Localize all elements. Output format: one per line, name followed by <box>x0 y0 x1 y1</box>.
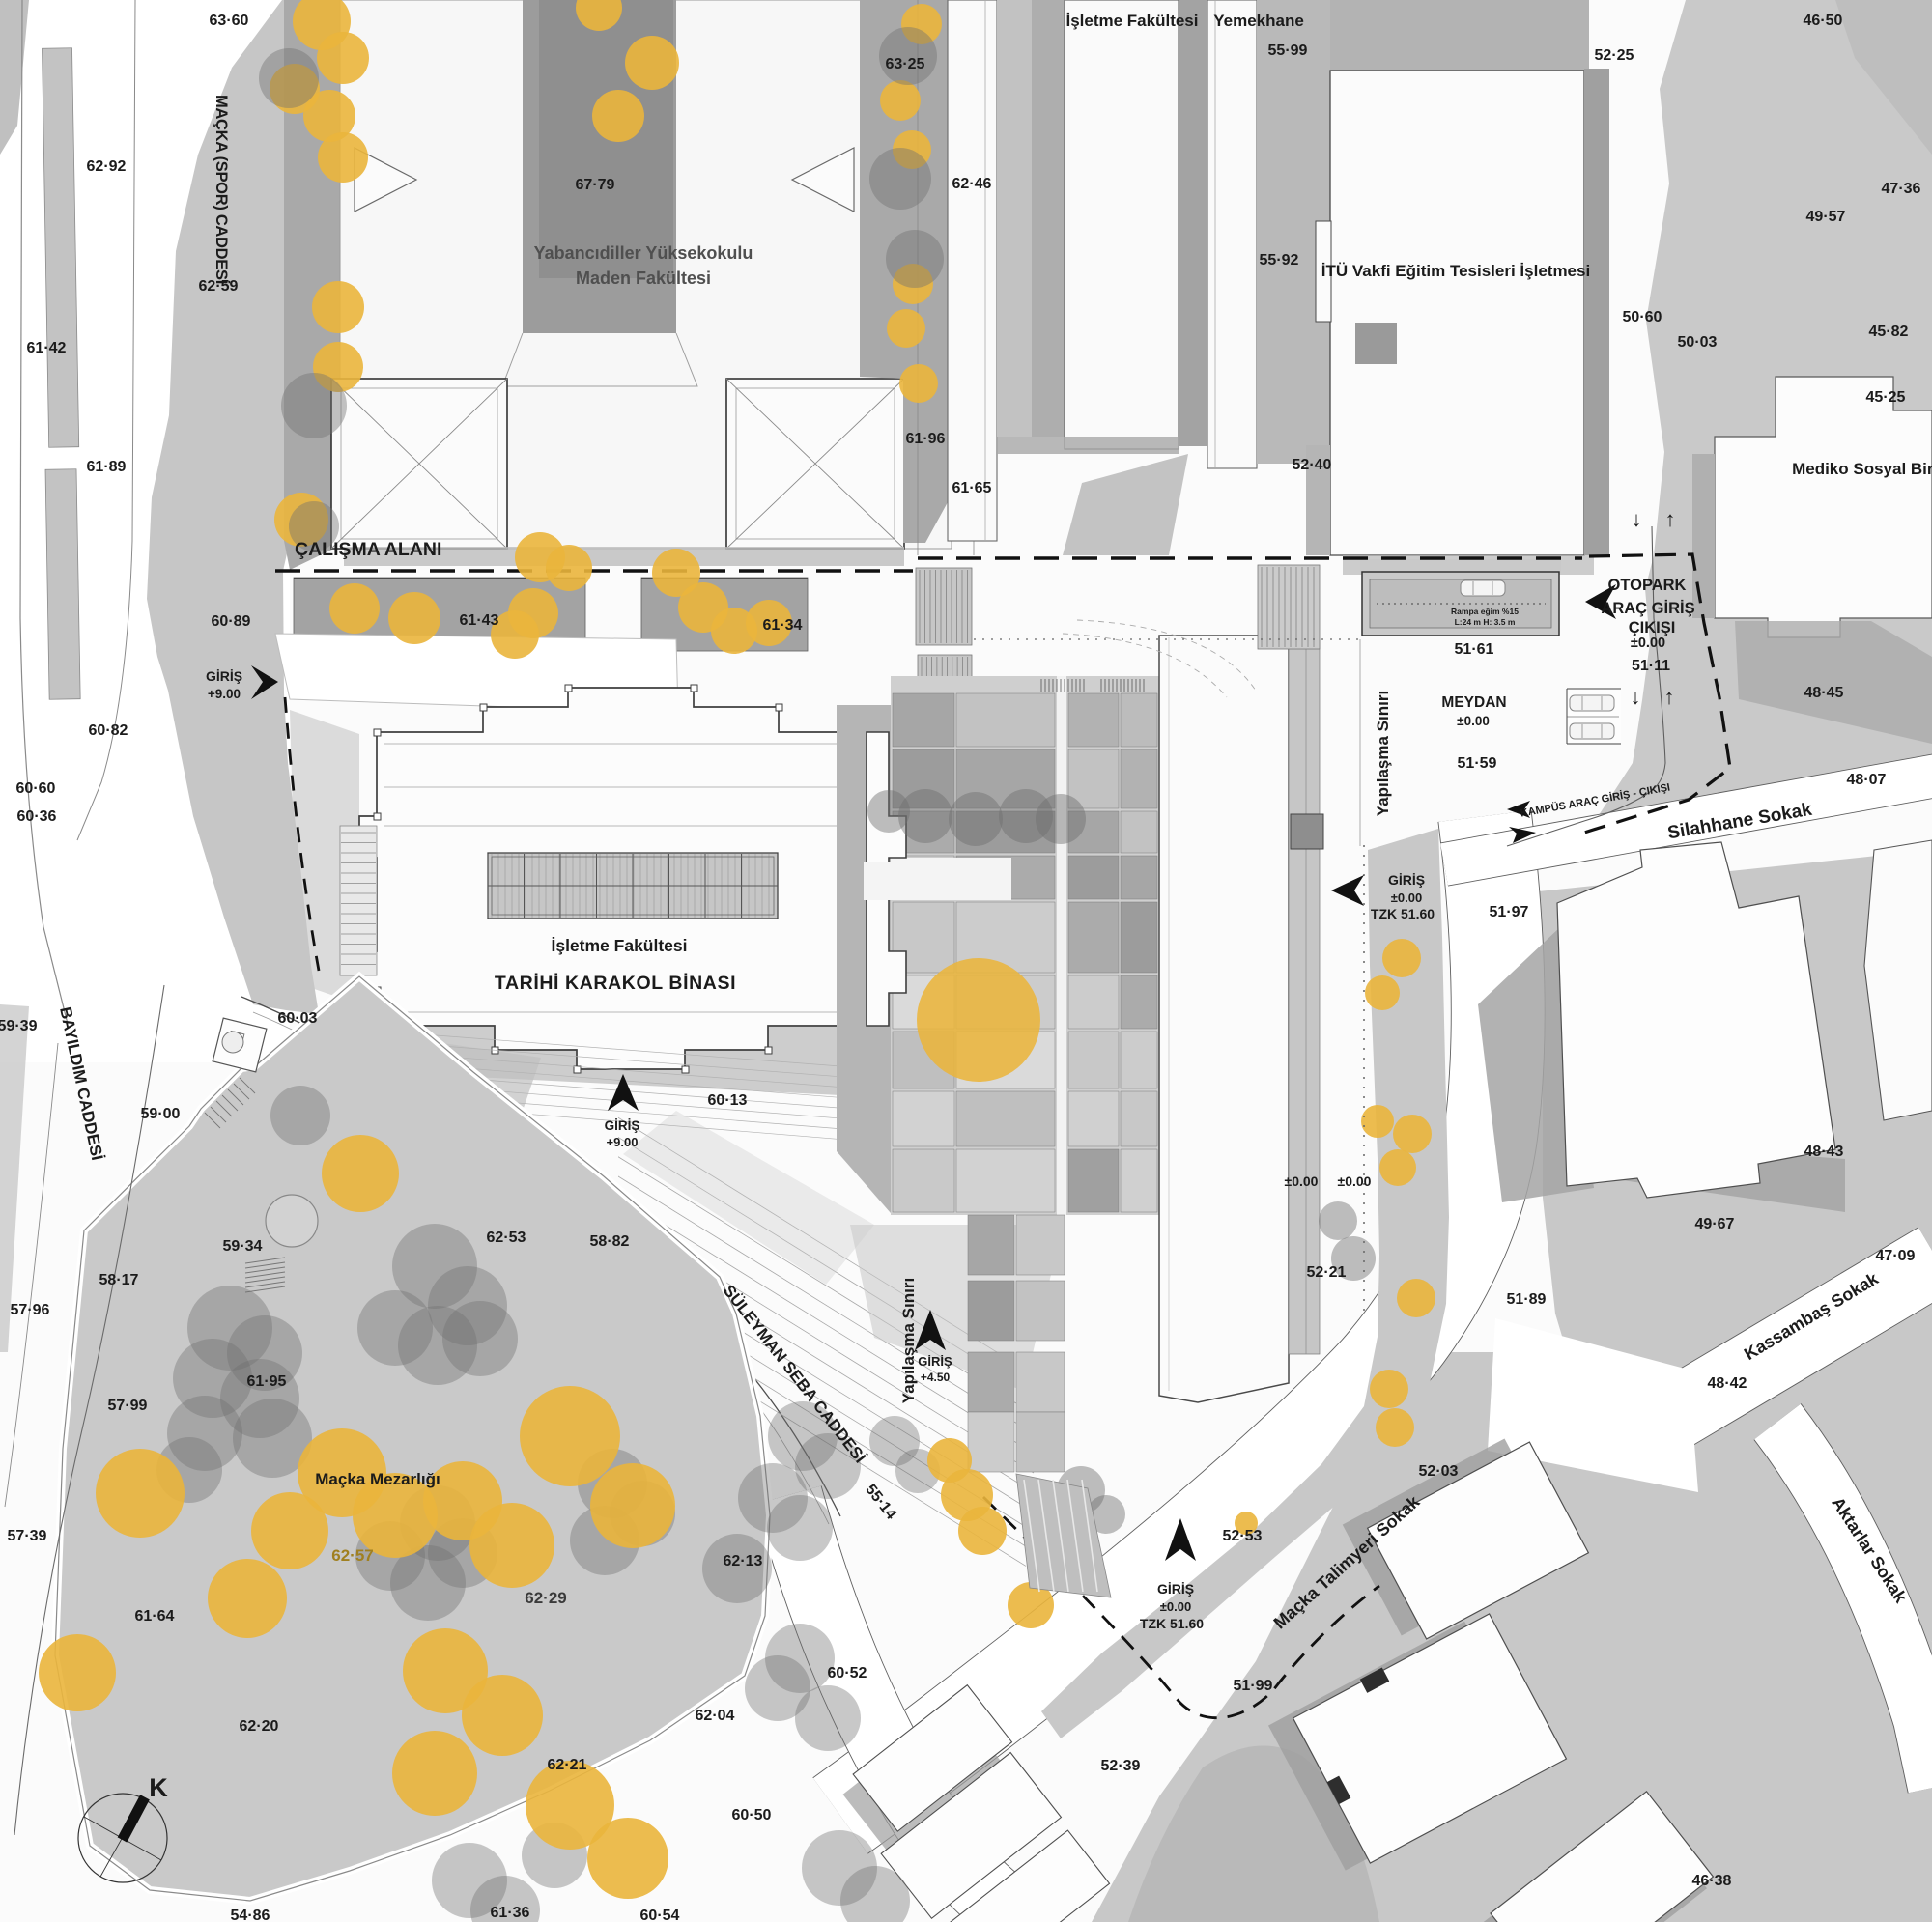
svg-text:↑: ↑ <box>1664 685 1675 709</box>
svg-text:61·64: 61·64 <box>135 1608 175 1625</box>
svg-text:60·60: 60·60 <box>16 780 56 797</box>
svg-text:48·07: 48·07 <box>1847 772 1887 788</box>
svg-text:57·39: 57·39 <box>8 1528 47 1544</box>
svg-text:±0.00: ±0.00 <box>1631 636 1665 651</box>
svg-text:51·97: 51·97 <box>1490 904 1529 920</box>
svg-text:İşletme Fakültesi: İşletme Fakültesi <box>1065 12 1198 30</box>
svg-text:Maden Fakültesi: Maden Fakültesi <box>576 269 711 288</box>
svg-text:İTÜ Vakfi Eğitim Tesisleri İşl: İTÜ Vakfi Eğitim Tesisleri İşletmesi <box>1321 262 1590 280</box>
svg-text:59·00: 59·00 <box>141 1106 181 1122</box>
svg-text:±0.00: ±0.00 <box>1391 890 1422 905</box>
svg-text:62·04: 62·04 <box>696 1708 735 1724</box>
svg-text:45·82: 45·82 <box>1869 324 1909 340</box>
svg-text:62·21: 62·21 <box>548 1757 587 1773</box>
svg-text:62·57: 62·57 <box>331 1546 373 1565</box>
svg-text:50·60: 50·60 <box>1623 309 1662 325</box>
svg-text:TZK 51.60: TZK 51.60 <box>1371 906 1435 921</box>
svg-text:51·89: 51·89 <box>1507 1291 1547 1308</box>
svg-text:+9.00: +9.00 <box>607 1135 639 1149</box>
svg-text:61·36: 61·36 <box>491 1905 530 1921</box>
svg-text:55·99: 55·99 <box>1268 42 1308 59</box>
svg-text:ÇALIŞMA ALANI: ÇALIŞMA ALANI <box>295 539 441 560</box>
svg-text:±0.00: ±0.00 <box>1457 714 1490 728</box>
svg-text:ARAÇ GİRİŞ: ARAÇ GİRİŞ <box>1601 600 1694 617</box>
svg-text:50·03: 50·03 <box>1678 334 1718 351</box>
svg-text:Maçka Mezarlığı: Maçka Mezarlığı <box>315 1470 440 1488</box>
svg-text:46·50: 46·50 <box>1804 13 1843 29</box>
svg-text:Yabancıdiller Yüksekokulu: Yabancıdiller Yüksekokulu <box>534 243 753 263</box>
svg-text:Yapılaşma Sınırı: Yapılaşma Sınırı <box>1374 691 1392 816</box>
svg-text:60·82: 60·82 <box>89 722 128 739</box>
svg-text:52·39: 52·39 <box>1101 1758 1141 1774</box>
svg-text:51·11: 51·11 <box>1632 658 1670 674</box>
svg-text:61·42: 61·42 <box>27 340 67 356</box>
svg-text:L:24 m H: 3.5 m: L:24 m H: 3.5 m <box>1455 617 1516 627</box>
svg-text:MEYDAN: MEYDAN <box>1441 694 1506 711</box>
svg-text:GİRİŞ: GİRİŞ <box>605 1118 640 1133</box>
svg-text:±0.00: ±0.00 <box>1160 1599 1191 1614</box>
svg-text:↓: ↓ <box>1632 507 1642 531</box>
svg-text:48·43: 48·43 <box>1804 1144 1844 1160</box>
svg-text:+4.50: +4.50 <box>921 1371 951 1384</box>
svg-text:62·92: 62·92 <box>87 158 127 175</box>
svg-text:48·42: 48·42 <box>1708 1375 1747 1392</box>
svg-text:55·92: 55·92 <box>1260 252 1299 269</box>
svg-text:52·21: 52·21 <box>1307 1264 1347 1281</box>
svg-text:51·59: 51·59 <box>1458 755 1497 772</box>
svg-text:45·25: 45·25 <box>1866 389 1906 406</box>
svg-text:62·29: 62·29 <box>525 1589 566 1607</box>
svg-text:60·52: 60·52 <box>828 1665 867 1682</box>
svg-text:İşletme Fakültesi: İşletme Fakültesi <box>551 936 687 955</box>
svg-text:52·03: 52·03 <box>1419 1463 1459 1480</box>
svg-text:TZK 51.60: TZK 51.60 <box>1140 1616 1204 1631</box>
svg-text:TARİHİ KARAKOL BİNASI: TARİHİ KARAKOL BİNASI <box>495 972 736 994</box>
svg-text:46·38: 46·38 <box>1692 1873 1732 1889</box>
svg-text:60·54: 60·54 <box>640 1908 680 1922</box>
svg-text:51·61: 51·61 <box>1455 641 1494 658</box>
svg-text:MAÇKA (SPOR) CADDESİ: MAÇKA (SPOR) CADDESİ <box>213 95 230 284</box>
svg-text:61·96: 61·96 <box>906 431 946 447</box>
svg-text:57·99: 57·99 <box>108 1398 148 1414</box>
svg-text:47·36: 47·36 <box>1882 181 1921 197</box>
svg-text:58·82: 58·82 <box>590 1233 630 1250</box>
svg-text:52·25: 52·25 <box>1595 47 1634 64</box>
svg-text:Mediko Sosyal Binası: Mediko Sosyal Binası <box>1792 460 1932 478</box>
svg-text:GİRİŞ: GİRİŞ <box>1157 1581 1194 1597</box>
svg-text:OTOPARK: OTOPARK <box>1608 577 1687 594</box>
svg-text:61·43: 61·43 <box>460 612 499 629</box>
svg-text:Yapılaşma Sınırı: Yapılaşma Sınırı <box>899 1278 918 1403</box>
svg-text:58·17: 58·17 <box>99 1272 139 1288</box>
svg-text:61·89: 61·89 <box>87 459 127 475</box>
svg-text:62·46: 62·46 <box>952 176 992 192</box>
svg-text:62·13: 62·13 <box>724 1553 763 1569</box>
svg-text:57·96: 57·96 <box>11 1302 50 1318</box>
svg-text:63·60: 63·60 <box>210 13 249 29</box>
svg-text:59·39: 59·39 <box>0 1018 38 1034</box>
svg-text:52·40: 52·40 <box>1293 457 1332 473</box>
svg-text:GİRİŞ: GİRİŞ <box>918 1354 952 1369</box>
svg-text:60·13: 60·13 <box>708 1092 748 1109</box>
svg-text:49·57: 49·57 <box>1806 209 1846 225</box>
svg-text:ÇIKIŞI: ÇIKIŞI <box>1629 619 1676 636</box>
svg-text:54·86: 54·86 <box>231 1908 270 1922</box>
svg-text:61·95: 61·95 <box>247 1373 287 1390</box>
svg-text:67·79: 67·79 <box>576 177 615 193</box>
svg-text:61·34: 61·34 <box>763 617 803 634</box>
svg-text:51·99: 51·99 <box>1234 1678 1273 1694</box>
svg-text:GİRİŞ: GİRİŞ <box>1388 872 1425 888</box>
svg-text:↑: ↑ <box>1665 507 1676 531</box>
svg-text:49·67: 49·67 <box>1695 1216 1735 1232</box>
svg-text:GİRİŞ: GİRİŞ <box>206 668 242 684</box>
svg-text:59·34: 59·34 <box>223 1238 263 1255</box>
svg-text:48·45: 48·45 <box>1804 685 1844 701</box>
svg-text:60·50: 60·50 <box>732 1807 772 1823</box>
svg-text:K: K <box>149 1773 168 1802</box>
svg-text:60·36: 60·36 <box>17 808 57 825</box>
svg-text:60·03: 60·03 <box>278 1010 318 1027</box>
svg-text:±0.00: ±0.00 <box>1285 1173 1319 1189</box>
svg-text:52·53: 52·53 <box>1223 1528 1263 1544</box>
svg-text:62·53: 62·53 <box>487 1230 526 1246</box>
svg-text:↓: ↓ <box>1631 685 1641 709</box>
svg-text:62·20: 62·20 <box>240 1718 279 1735</box>
svg-text:61·65: 61·65 <box>952 480 992 496</box>
svg-text:60·89: 60·89 <box>212 613 251 630</box>
svg-text:Rampa eğim %15: Rampa eğim %15 <box>1451 607 1519 616</box>
svg-text:63·25: 63·25 <box>886 56 925 72</box>
svg-text:47·09: 47·09 <box>1876 1248 1916 1264</box>
svg-text:±0.00: ±0.00 <box>1338 1173 1372 1189</box>
svg-text:+9.00: +9.00 <box>208 687 241 701</box>
svg-text:Yemekhane: Yemekhane <box>1213 12 1304 30</box>
